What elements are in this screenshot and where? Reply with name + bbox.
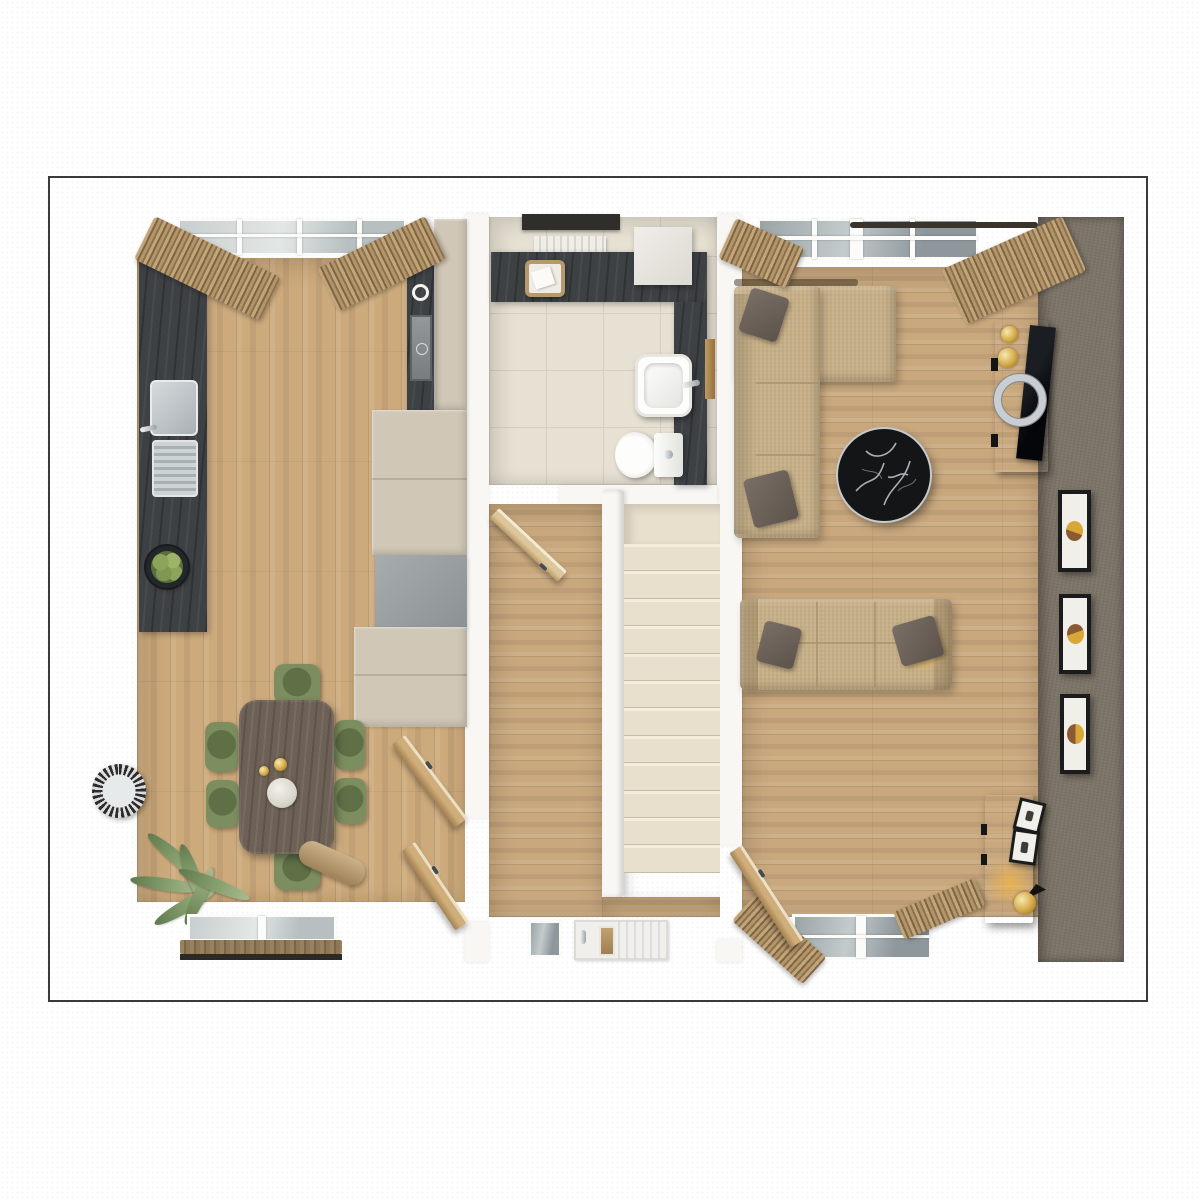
window-pelmet <box>180 940 342 954</box>
sofa-seam <box>874 602 876 687</box>
oven-dial <box>416 343 428 355</box>
console-handle-notch <box>991 434 998 447</box>
console-lamp <box>998 348 1018 368</box>
floor-lamp-base <box>1014 892 1036 914</box>
cabinet-seam <box>354 674 467 676</box>
wall-mirror <box>92 764 146 818</box>
sofa-seam <box>756 454 816 456</box>
console-lamp <box>1001 326 1018 343</box>
stair-steps <box>624 544 720 897</box>
bathroom-window-blind <box>522 214 620 230</box>
hob-burner-ring <box>412 284 429 301</box>
frame-mat <box>1062 494 1087 568</box>
living-window-mullion <box>759 236 977 240</box>
wall-art-frame <box>1058 490 1091 572</box>
marble-coffee-table <box>838 429 930 521</box>
kitchen-peninsula <box>354 627 467 727</box>
art-circle <box>1067 724 1084 744</box>
stair-step <box>624 763 720 790</box>
kitchen-hall-wall <box>465 922 489 962</box>
sofa-armrest <box>740 599 758 690</box>
stair-step <box>624 818 720 845</box>
kitchen-mid-cabinet <box>372 410 467 555</box>
wall-art-frame <box>1059 594 1091 674</box>
art-circle <box>1067 624 1084 644</box>
stair-banister <box>602 490 624 897</box>
cabinet-seam <box>372 478 467 480</box>
sideboard-handle-notch <box>981 824 987 835</box>
basin-bowl <box>644 363 683 408</box>
towel-basket <box>525 260 565 297</box>
sofa-seam <box>816 602 818 687</box>
stair-step <box>624 571 720 598</box>
front-door <box>574 920 668 960</box>
front-door-handle <box>580 930 586 944</box>
stair-step <box>624 544 720 571</box>
bathroom-hall-wall <box>560 485 717 504</box>
fruit-bowl <box>146 546 188 588</box>
frame-mat <box>1016 801 1043 831</box>
floor-plan-sheet <box>48 176 1148 1002</box>
door-sidelight <box>528 920 562 958</box>
stair-step <box>624 654 720 681</box>
table-vase <box>267 778 297 808</box>
sofa-seam <box>756 382 818 384</box>
kitchen-window-mullion <box>297 219 302 255</box>
toilet-cistern <box>654 433 683 477</box>
hallway-floor-under-stairs <box>602 897 720 917</box>
silver-ring-decor <box>994 374 1046 426</box>
dining-chair <box>334 720 365 770</box>
kitchen-hall-wall <box>465 214 489 818</box>
stair-step <box>624 599 720 626</box>
bathroom-wood-shelf <box>705 339 715 399</box>
kitchen-front-window-mullion <box>258 916 266 940</box>
stair-step <box>624 708 720 735</box>
stair-step <box>624 736 720 763</box>
green-apples <box>151 551 183 583</box>
dining-chair <box>205 722 238 772</box>
washbasin <box>635 354 692 417</box>
kitchen-sink-drainer <box>152 440 198 497</box>
frame-mat <box>1012 832 1037 863</box>
kitchen-sink-bowl <box>150 380 198 436</box>
dining-chair <box>206 780 239 828</box>
stair-landing <box>624 504 720 544</box>
sofa-seam <box>818 288 820 380</box>
photo-figure <box>1020 841 1028 853</box>
marble-veins <box>838 429 930 521</box>
built-in-oven <box>410 315 432 381</box>
table-candle <box>259 766 269 776</box>
wall-art-frame <box>1060 694 1090 774</box>
art-circle <box>1066 521 1083 541</box>
dining-chair <box>334 778 366 824</box>
console-handle-notch <box>991 358 998 371</box>
frame-mat <box>1063 598 1087 670</box>
leaning-frame <box>1009 828 1040 865</box>
kitchen-window-mullion <box>237 219 242 255</box>
front-door-glazing <box>599 926 615 956</box>
table-candle <box>274 758 287 771</box>
sideboard-handle-notch <box>981 854 987 865</box>
towels <box>531 266 556 289</box>
stair-step <box>624 845 720 872</box>
frame-mat <box>1064 698 1086 770</box>
front-door-ridges <box>618 922 666 958</box>
stair-step <box>624 791 720 818</box>
bathroom-wall-cabinet <box>634 227 692 285</box>
dining-chair <box>274 664 320 704</box>
kitchen-window-mullion <box>179 234 405 237</box>
kitchen-appliance-gray <box>375 555 467 627</box>
window-pelmet-shadow <box>180 954 342 960</box>
stair-step <box>624 681 720 708</box>
curtain-rod <box>850 222 1038 228</box>
sofa-frame-edge <box>734 279 858 286</box>
photo-figure <box>1025 810 1034 821</box>
hall-living-wall <box>717 940 742 962</box>
radiator <box>534 236 606 252</box>
dining-table <box>239 700 334 854</box>
flush-button <box>664 450 673 459</box>
page: { "image": { "type": "3d-floor-plan-rend… <box>0 0 1200 1200</box>
stair-step <box>624 626 720 653</box>
